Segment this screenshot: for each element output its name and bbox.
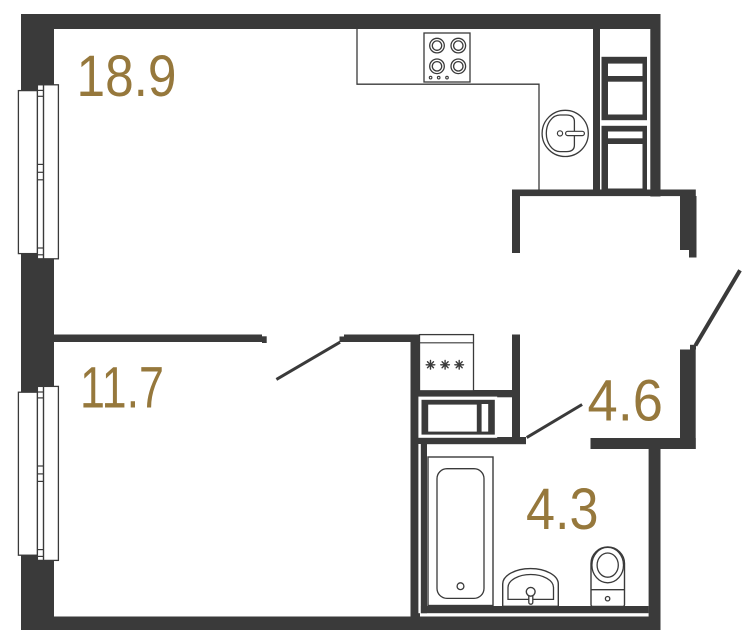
svg-text:4.3: 4.3 bbox=[526, 477, 599, 542]
svg-text:4.6: 4.6 bbox=[588, 369, 664, 434]
svg-text:18.9: 18.9 bbox=[77, 44, 177, 109]
svg-text:11.7: 11.7 bbox=[80, 355, 164, 420]
